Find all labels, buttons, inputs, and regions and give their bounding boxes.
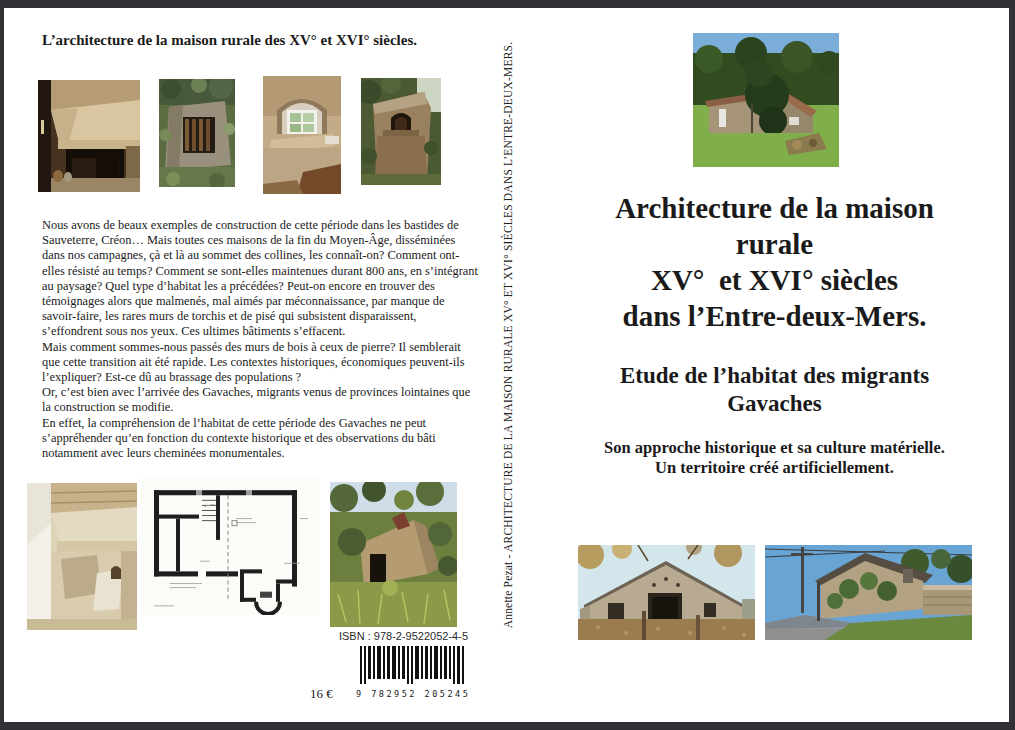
- photo-interior-stone-fireplace: [38, 80, 140, 192]
- photo-arched-stone-window: [263, 76, 341, 194]
- front-title-line-3: XV° et XVI° siècles: [545, 262, 1004, 298]
- front-tagline-line-1: Son approche historique et sa culture ma…: [545, 438, 1004, 458]
- back-paragraph-2: Mais comment sommes-nous passés des murs…: [42, 340, 479, 386]
- back-paragraph-4: En effet, la compréhension de l’habitat …: [42, 416, 479, 462]
- back-cover-title: L’architecture de la maison rurale des X…: [42, 32, 492, 49]
- photo-stone-barn-autumn: [578, 545, 755, 640]
- photo-stone-house-in-meadow: [693, 33, 839, 167]
- back-paragraph-3: Or, c’est bien avec l’arrivée des Gavach…: [42, 385, 479, 415]
- back-cover-body: Nous avons de beaux exemples de construc…: [42, 218, 479, 461]
- front-tagline: Son approche historique et sa culture ma…: [545, 438, 1004, 477]
- book-cover-spread: L’architecture de la maison rurale des X…: [0, 0, 1015, 730]
- photo-stone-bread-oven: [361, 78, 441, 185]
- spine-text: Annette Pezat - ARCHITECTURE DE LA MAISO…: [502, 42, 514, 629]
- front-title-line-1: Architecture de la maison: [545, 190, 1004, 226]
- photo-floor-plan-drawing: [140, 478, 320, 615]
- price-label: 16 €: [310, 686, 333, 702]
- front-subtitle: Etude de l’habitat des migrants Gavaches: [545, 362, 1004, 418]
- front-tagline-line-2: Un territoire créé artificiellement.: [545, 458, 1004, 478]
- front-title-line-4: dans l’Entre-deux-Mers.: [545, 298, 1004, 334]
- photo-overgrown-stone-ruin: [330, 482, 457, 627]
- barcode: 9 782952 205245: [356, 646, 468, 699]
- front-title-line-2: rurale: [545, 226, 1004, 262]
- isbn-label: ISBN : 978-2-9522052-4-5: [264, 630, 468, 642]
- photo-stone-ruin-with-wooden-slats: [159, 79, 235, 187]
- barcode-bars: [356, 646, 468, 684]
- barcode-digits: 9 782952 205245: [356, 689, 468, 699]
- cover-sheet: L’architecture de la maison rurale des X…: [4, 8, 1009, 722]
- front-title: Architecture de la maison rurale XV° et …: [545, 190, 1004, 334]
- photo-white-stone-fireplace: [27, 483, 137, 630]
- front-subtitle-line-2: Gavaches: [545, 390, 1004, 418]
- front-subtitle-line-1: Etude de l’habitat des migrants: [545, 362, 1004, 390]
- back-paragraph-1: Nous avons de beaux exemples de construc…: [42, 218, 479, 340]
- photo-roadside-stone-house: [765, 545, 972, 640]
